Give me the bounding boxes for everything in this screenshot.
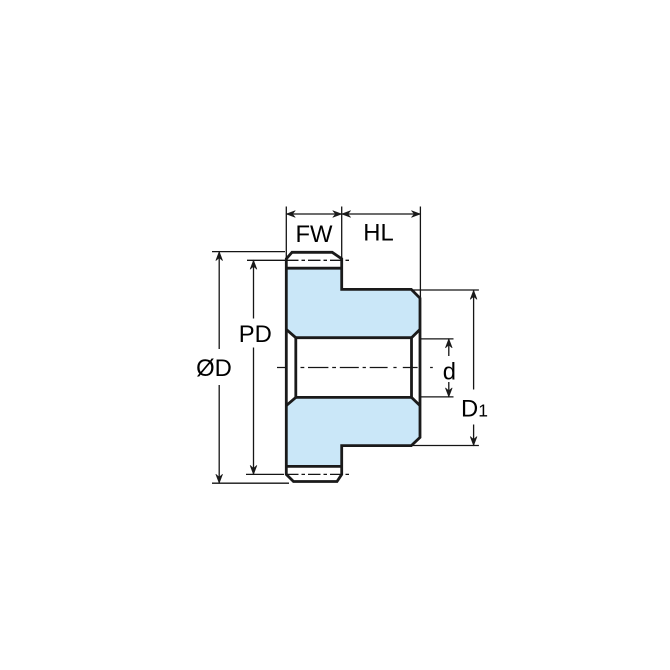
svg-text:FW: FW xyxy=(296,221,334,248)
svg-text:d: d xyxy=(443,358,456,385)
svg-text:PD: PD xyxy=(239,321,272,348)
svg-text:HL: HL xyxy=(363,219,393,246)
svg-text:ØD: ØD xyxy=(196,355,232,382)
svg-text:D1: D1 xyxy=(461,395,488,422)
